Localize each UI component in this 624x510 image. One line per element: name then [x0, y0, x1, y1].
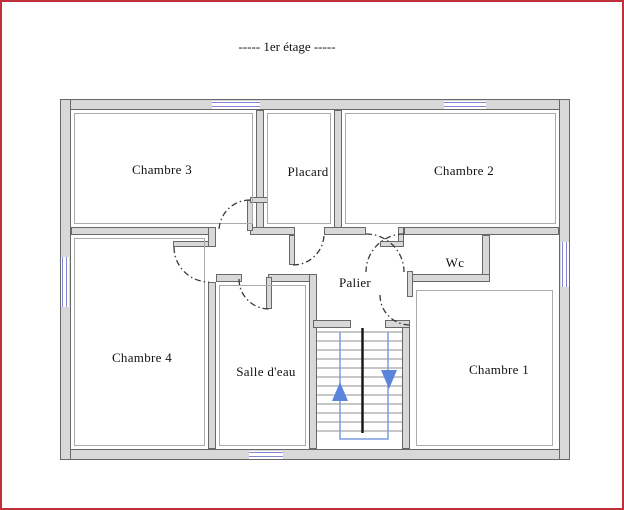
door-arc-salledeau	[239, 279, 269, 309]
room-label-chambre1: Chambre 1	[469, 362, 529, 378]
room-label-chambre3: Chambre 3	[132, 162, 192, 178]
door-arcs	[174, 200, 410, 325]
room-label-chambre4: Chambre 4	[112, 350, 172, 366]
room-label-placard: Placard	[287, 164, 328, 180]
room-label-salledeau: Salle d'eau	[236, 364, 295, 380]
door-arc-placard	[293, 234, 324, 265]
room-label-palier: Palier	[339, 275, 371, 291]
room-label-wc: Wc	[446, 255, 465, 271]
door-arc-chambre3	[219, 200, 250, 231]
door-arc-chambre1	[380, 295, 410, 325]
floor-plan-canvas: ----- 1er étage -----	[0, 0, 624, 510]
door-arc-chambre2	[366, 234, 404, 272]
door-arc-chambre4	[174, 247, 209, 282]
door-arc-wc	[366, 234, 404, 272]
stair-up-arrow-icon	[332, 382, 348, 401]
plan-overlay	[2, 2, 624, 510]
room-label-chambre2: Chambre 2	[434, 163, 494, 179]
